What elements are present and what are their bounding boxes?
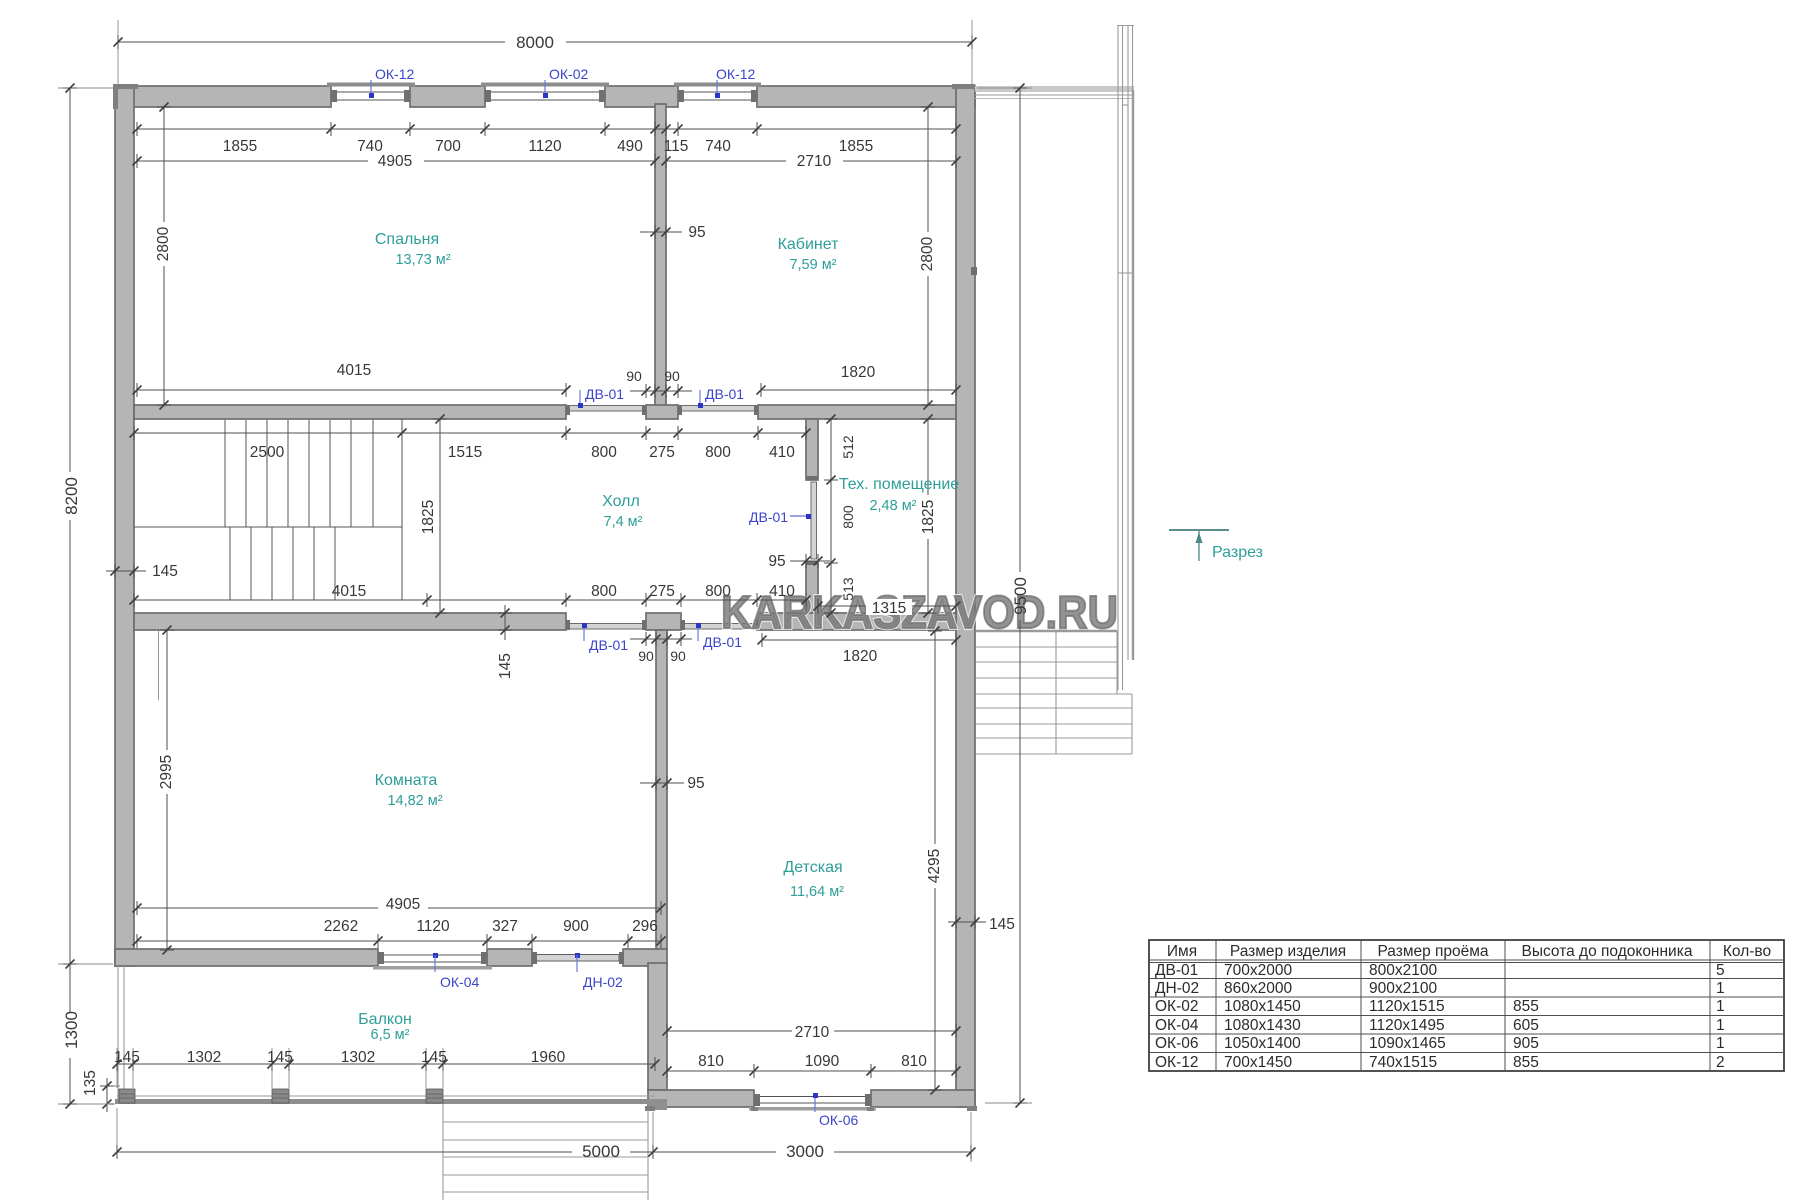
svg-text:ОК-06: ОК-06 [1155,1035,1199,1052]
svg-text:1090: 1090 [805,1053,840,1070]
svg-text:ОК-04: ОК-04 [1155,1017,1199,1034]
svg-text:1855: 1855 [839,138,873,155]
svg-text:2,48 м²: 2,48 м² [869,498,916,514]
svg-text:ОК-12: ОК-12 [375,66,414,82]
svg-text:800: 800 [705,444,731,461]
svg-text:ОК-02: ОК-02 [1155,998,1199,1015]
svg-text:ОК-12: ОК-12 [716,66,755,82]
svg-text:800: 800 [591,444,617,461]
svg-text:ДВ-01: ДВ-01 [589,637,628,653]
svg-text:1080х1430: 1080х1430 [1224,1017,1301,1034]
svg-text:512: 512 [840,435,856,459]
svg-text:8000: 8000 [516,33,554,52]
svg-text:1120х1495: 1120х1495 [1369,1017,1445,1034]
svg-text:905: 905 [1513,1035,1539,1052]
svg-text:90: 90 [664,368,680,384]
svg-text:7,4 м²: 7,4 м² [604,514,643,530]
svg-text:Размер проёма: Размер проёма [1377,943,1488,960]
svg-text:ОК-04: ОК-04 [440,974,479,990]
svg-text:800х2100: 800х2100 [1369,962,1437,979]
svg-text:1120: 1120 [528,138,562,155]
svg-text:2995: 2995 [158,755,175,789]
svg-text:1825: 1825 [920,500,937,534]
svg-text:2710: 2710 [797,153,832,170]
svg-text:5: 5 [1716,962,1725,979]
svg-text:605: 605 [1513,1017,1539,1034]
svg-text:90: 90 [626,368,642,384]
svg-text:Размер изделия: Размер изделия [1230,943,1346,960]
svg-text:700х2000: 700х2000 [1224,962,1292,979]
svg-text:275: 275 [649,444,675,461]
svg-text:6,5 м²: 6,5 м² [371,1027,410,1043]
svg-text:1080х1450: 1080х1450 [1224,998,1301,1015]
svg-text:800: 800 [705,583,731,600]
svg-text:800: 800 [840,505,856,529]
svg-text:1: 1 [1716,1017,1725,1034]
svg-text:810: 810 [901,1053,927,1070]
svg-text:1302: 1302 [341,1049,375,1066]
svg-text:ДВ-01: ДВ-01 [585,386,624,402]
svg-text:Холл: Холл [602,493,640,510]
svg-text:1315: 1315 [872,600,906,617]
svg-text:740: 740 [705,138,731,155]
svg-text:Комната: Комната [375,772,438,789]
svg-text:Имя: Имя [1167,943,1197,960]
svg-text:ДВ-01: ДВ-01 [703,634,742,650]
svg-text:95: 95 [688,224,705,241]
svg-text:ДВ-01: ДВ-01 [749,509,788,525]
svg-text:740х1515: 740х1515 [1369,1054,1437,1071]
svg-text:Кол-во: Кол-во [1723,943,1771,960]
svg-text:1: 1 [1716,980,1725,997]
svg-text:145: 145 [989,916,1015,933]
svg-text:1050х1400: 1050х1400 [1224,1035,1301,1052]
svg-text:513: 513 [840,577,856,601]
svg-text:1855: 1855 [223,138,257,155]
svg-text:2262: 2262 [324,918,358,935]
svg-text:4015: 4015 [337,362,371,379]
svg-text:135: 135 [82,1070,99,1096]
svg-text:9500: 9500 [1011,577,1030,615]
svg-text:275: 275 [649,583,675,600]
svg-text:900: 900 [563,918,589,935]
svg-text:ОК-12: ОК-12 [1155,1054,1199,1071]
svg-text:Высота до подоконника: Высота до подоконника [1522,943,1693,960]
svg-text:95: 95 [768,553,785,570]
svg-text:1300: 1300 [62,1011,81,1049]
svg-text:ДН-02: ДН-02 [1155,980,1199,997]
svg-text:8200: 8200 [62,477,81,515]
svg-text:90: 90 [638,648,654,664]
svg-text:327: 327 [492,918,518,935]
svg-text:296: 296 [632,918,658,935]
svg-text:11,64 м²: 11,64 м² [790,884,844,900]
svg-text:1120: 1120 [416,918,450,935]
svg-text:4015: 4015 [332,583,366,600]
svg-text:145: 145 [114,1049,140,1066]
svg-text:14,82 м²: 14,82 м² [387,793,442,809]
svg-text:410: 410 [769,583,795,600]
svg-text:2800: 2800 [155,226,172,261]
svg-text:4295: 4295 [926,849,943,883]
svg-text:ОК-06: ОК-06 [819,1112,858,1128]
svg-text:Кабинет: Кабинет [778,236,840,253]
svg-text:ДВ-01: ДВ-01 [1155,962,1198,979]
svg-text:5000: 5000 [582,1142,620,1161]
svg-text:700: 700 [435,138,461,155]
svg-text:1: 1 [1716,1035,1725,1052]
svg-text:700х1450: 700х1450 [1224,1054,1292,1071]
svg-text:145: 145 [152,563,178,580]
svg-text:145: 145 [267,1049,293,1066]
svg-text:810: 810 [698,1053,724,1070]
svg-text:2500: 2500 [250,444,285,461]
svg-text:ДВ-01: ДВ-01 [705,386,744,402]
svg-text:1302: 1302 [187,1049,221,1066]
svg-text:800: 800 [591,583,617,600]
svg-text:860х2000: 860х2000 [1224,980,1292,997]
svg-text:855: 855 [1513,998,1539,1015]
svg-text:855: 855 [1513,1054,1539,1071]
svg-text:4905: 4905 [386,896,420,913]
svg-text:2: 2 [1716,1054,1725,1071]
svg-text:3000: 3000 [786,1142,824,1161]
svg-text:1: 1 [1716,998,1725,1015]
svg-text:Балкон: Балкон [358,1011,412,1028]
svg-text:4905: 4905 [378,153,412,170]
svg-text:1515: 1515 [448,444,482,461]
svg-text:Тех. помещение: Тех. помещение [839,476,959,493]
svg-text:2710: 2710 [795,1024,830,1041]
svg-text:490: 490 [617,138,643,155]
svg-text:1090х1465: 1090х1465 [1369,1035,1446,1052]
svg-text:1820: 1820 [841,364,876,381]
svg-text:ОК-02: ОК-02 [549,66,588,82]
svg-text:95: 95 [687,775,704,792]
svg-text:900х2100: 900х2100 [1369,980,1437,997]
svg-text:145: 145 [497,653,514,679]
svg-text:90: 90 [670,648,686,664]
svg-text:ДН-02: ДН-02 [583,974,623,990]
svg-text:7,59 м²: 7,59 м² [789,257,836,273]
svg-text:Детская: Детская [783,859,842,876]
svg-text:1960: 1960 [531,1049,566,1066]
svg-text:Разрез: Разрез [1212,544,1263,561]
svg-text:145: 145 [421,1049,447,1066]
svg-text:1825: 1825 [420,500,437,534]
svg-text:13,73 м²: 13,73 м² [395,252,450,268]
svg-text:1120х1515: 1120х1515 [1369,998,1445,1015]
svg-text:2800: 2800 [919,236,936,271]
svg-text:410: 410 [769,444,795,461]
svg-text:115: 115 [664,138,689,155]
svg-text:Спальня: Спальня [375,231,439,248]
svg-text:1820: 1820 [843,648,878,665]
